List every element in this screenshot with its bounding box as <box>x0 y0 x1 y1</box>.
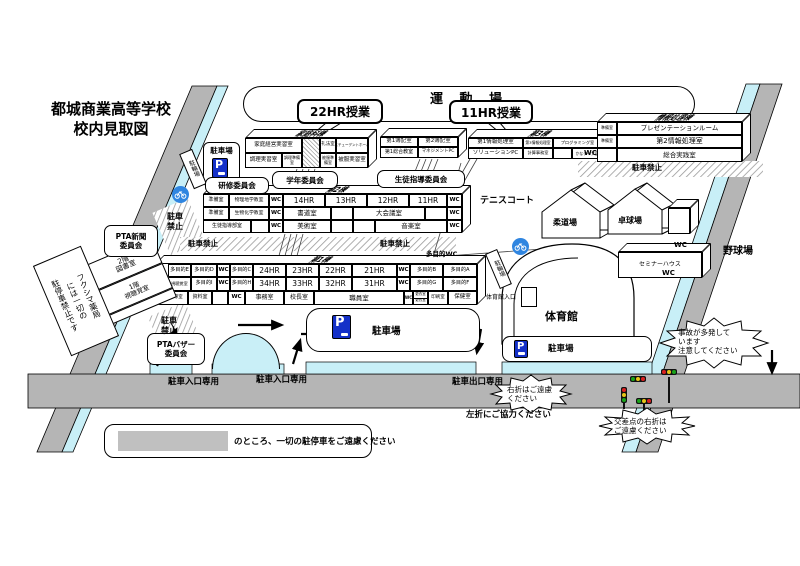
room-tamoku-e: 多目的E <box>168 264 191 277</box>
room-tamoku-c: 多目的C <box>230 264 253 277</box>
parking-top-label: 駐車場 <box>203 146 240 155</box>
room-student-hall: スチューデントホール <box>336 138 368 153</box>
room-21hr: 21HR <box>352 264 397 277</box>
room-boki1: 第1簿記室 <box>380 137 418 147</box>
room-mgmtpc: マネジメントPC <box>418 147 458 158</box>
legend-swatch <box>118 431 228 451</box>
gym-label: 体育館 <box>545 310 578 323</box>
wc-cell: WC <box>269 220 283 233</box>
bldg-boki-roof <box>380 128 467 137</box>
room-hoken: 保健室 <box>448 291 477 305</box>
room-kocho: 校長室 <box>284 291 314 305</box>
room-daikaigi: 大会議室 <box>353 207 425 220</box>
traffic-light-pole <box>668 377 670 403</box>
campus-map: 都城商業高等学校校内見取図 運 動 場 22HR授業 11HR授業 家庭科棟 家… <box>0 0 800 566</box>
room-joho2: 第2情報処理室 <box>617 135 742 148</box>
room-lockers: 更衣室 更衣室 <box>413 291 428 305</box>
wc-cell: WC <box>397 277 410 291</box>
room-solution: ソリューションPC <box>468 148 523 159</box>
room-keisan: 計算事務室 <box>523 148 553 159</box>
callout-pta-bazaar: PTAバザー 委員会 <box>147 333 205 365</box>
room-shodo: 書道室 <box>283 207 331 220</box>
callout-gakunen: 学年委員会 <box>272 171 338 189</box>
road-entrance-label: 駐車入口専用 <box>256 375 307 385</box>
wc-cell: WC <box>404 291 413 305</box>
crossing-right-turn-note: 交差点の右折は ご遠慮ください <box>614 417 667 435</box>
bicycle-icon <box>512 238 529 255</box>
wc-label: WC <box>674 241 687 249</box>
tamokuteki-wc-label: 多目的WC <box>426 251 457 259</box>
room-reiho: 礼法室 <box>320 138 336 153</box>
bicycle-icon <box>172 186 189 203</box>
no-parking-label: 駐車禁止 <box>632 163 662 172</box>
road-entrance-label: 駐車入口専用 <box>168 377 219 387</box>
parking-gym-label: 駐車場 <box>548 344 574 354</box>
traffic-light-icon <box>630 376 646 382</box>
tennis-court-label: テニスコート <box>480 196 534 207</box>
wc-cell: WC <box>447 207 462 220</box>
wc-cell: WC <box>228 291 245 305</box>
no-parking-label: 駐車 禁止 <box>167 212 183 231</box>
gym-entrance-label: 体育館入口 <box>486 294 516 301</box>
callout-kenshu: 研修委員会 <box>205 177 269 194</box>
no-parking-label: 駐車 禁止 <box>161 316 177 335</box>
bldg-no3-roof: 第3棟 <box>468 129 611 138</box>
room-chori: 調理実習室 <box>245 153 282 168</box>
bldg-no1: 多目的E 多目的D WC 多目的C 24HR 23HR 22HR 21HR WC… <box>155 264 477 305</box>
room-tamoku-i: 多目的I <box>191 277 217 291</box>
katei-stairs <box>302 138 320 168</box>
room-tamoku-b: 多目的B <box>410 264 443 277</box>
accident-note: 事故が多発して います 注意してください <box>678 328 738 355</box>
traffic-light-pole <box>623 403 625 409</box>
room-12hr: 12HR <box>367 194 409 207</box>
legend-text: のところ、一切の駐停車をご遠慮ください <box>234 437 396 447</box>
room-tamoku-h: 多目的H <box>230 277 253 291</box>
room-small <box>331 207 353 220</box>
left-turn-note: 左折にご協力ください <box>466 410 551 420</box>
parking-icon: P <box>332 315 351 339</box>
room-hifuku-prep: 被服準備室 <box>320 153 336 168</box>
parking-icon: P <box>514 340 528 358</box>
room-joho3: 第3情報処理室 <box>523 138 553 148</box>
room-small <box>425 207 447 220</box>
wc-label: WC <box>662 269 675 277</box>
room-small <box>353 220 375 233</box>
bldg-no3: 第1情報処理室 第3情報処理室 プログラミング室 ソリューションPC 計算事務室… <box>468 138 602 159</box>
wc-cell: WC <box>269 194 283 207</box>
room-small <box>251 220 269 233</box>
gym-entrance-box <box>521 287 537 307</box>
seminar-roof <box>618 243 711 252</box>
p-glyph: P <box>517 341 524 352</box>
room-joho1: 第1情報処理室 <box>468 138 523 148</box>
room-hifuku: 被服実習室 <box>336 153 368 168</box>
room-14hr: 14HR <box>283 194 325 207</box>
callout-11hr: 11HR授業 <box>449 100 533 124</box>
wc-cell: WC <box>447 194 462 207</box>
room-shiryo: 資料室 <box>188 291 212 305</box>
room-33hr: 33HR <box>286 277 319 291</box>
room-prep: 準備室 <box>203 194 229 207</box>
room-ongaku: 音楽室 <box>375 220 447 233</box>
room-presen: プレゼンテーションルーム <box>617 122 742 135</box>
no-parking-label: 駐車禁止 <box>188 239 218 248</box>
room-tamoku-f: 多目的F <box>443 277 477 291</box>
room-32hr: 32HR <box>319 277 352 291</box>
bldg-katei: 家庭経営実習室 礼法室 スチューデントホール 調理実習室 調理準備室 被服準備室… <box>245 138 368 168</box>
title-line2: 校内見取図 <box>73 120 148 138</box>
room-small <box>597 148 617 162</box>
seminar-house: セミナーハウス <box>618 252 702 278</box>
bldg-joho: 準備室 プレゼンテーションルーム 準備室 第2情報処理室 総合実践室 <box>597 122 742 162</box>
room-13hr: 13HR <box>325 194 367 207</box>
room-small <box>553 148 572 159</box>
title-line1: 都城商業高等学校 <box>51 100 171 118</box>
room-koi2: 更衣室 <box>414 299 427 305</box>
page-title: 都城商業高等学校校内見取図 <box>42 100 180 139</box>
baseball-label: 野球場 <box>723 246 753 258</box>
room-shokuin: 職員室 <box>314 291 404 305</box>
hut <box>668 208 690 234</box>
room-kateikeiei: 家庭経営実習室 <box>245 138 302 153</box>
room-23hr: 23HR <box>286 264 319 277</box>
wc-cell: WC <box>217 264 230 277</box>
room-tamoku-a: 多目的A <box>443 264 477 277</box>
room-24hr: 24HR <box>253 264 286 277</box>
room-34hr: 34HR <box>253 277 286 291</box>
callout-seishi: 生徒指導委員会 <box>377 170 465 188</box>
bldg-no2: 準備室 物理地学教室 WC 14HR 13HR 12HR 11HR WC 準備室… <box>203 194 462 233</box>
traffic-light-icon <box>621 387 627 403</box>
room-joho-prep1: 準備室 <box>597 122 617 135</box>
tabletennis-label: 卓球場 <box>618 216 642 226</box>
parking-icon: P <box>212 158 228 178</box>
room-chori-prep: 調理準備室 <box>282 153 302 168</box>
room-31hr: 31HR <box>352 277 397 291</box>
bldg-katei-roof: 家庭科棟 <box>245 129 377 138</box>
room-seishidobu: 生徒指導部室 <box>203 220 251 233</box>
wc-cell: WC <box>269 207 283 220</box>
room-small <box>331 220 353 233</box>
callout-22hr: 22HR授業 <box>297 99 383 124</box>
parking-center-label: 駐車場 <box>372 326 401 337</box>
room-jimu: 事務室 <box>245 291 284 305</box>
room-22hr: 22HR <box>319 264 352 277</box>
bldg-joho-roof: 情報処理棟 <box>597 113 751 122</box>
room-jissen: 総合実践室 <box>617 148 742 162</box>
room-prep: 準備室 <box>203 207 229 220</box>
traffic-light-pole <box>643 404 645 410</box>
room-prog: プログラミング室 <box>553 138 602 148</box>
room-joho-prep2: 準備室 <box>597 135 617 148</box>
no-right-turn-note: 右折はご遠慮 ください <box>507 385 552 403</box>
road-exit-label: 駐車出口専用 <box>452 377 503 387</box>
wc-cell: WC <box>397 264 410 277</box>
p-glyph: P <box>215 159 223 171</box>
room-tamoku-d: 多目的D <box>191 264 217 277</box>
traffic-light-icon <box>661 369 677 375</box>
room-11hr: 11HR <box>409 194 447 207</box>
no-parking-label: 駐車禁止 <box>380 239 410 248</box>
wc-cell: WC <box>447 220 462 233</box>
wc-cell: WC <box>217 277 230 291</box>
room-butsuri: 物理地学教室 <box>229 194 269 207</box>
room-seibutsu: 生物化学教室 <box>229 207 269 220</box>
room-small <box>212 291 228 305</box>
wc-label: WC <box>584 149 597 157</box>
bldg-boki: 第1簿記室 第2簿記室 第1総合教室 マネジメントPC <box>380 137 458 158</box>
p-glyph: P <box>335 316 345 330</box>
room-boki2: 第2簿記室 <box>418 137 458 147</box>
room-tamoku-g: 多目的G <box>410 277 443 291</box>
room-bijutsu: 美術室 <box>283 220 331 233</box>
judo-label: 柔道場 <box>553 218 577 228</box>
callout-pta-news: PTA新聞 委員会 <box>104 225 158 257</box>
room-sogo1: 第1総合教室 <box>380 147 418 158</box>
room-insatsu: 印刷室 <box>428 291 448 305</box>
